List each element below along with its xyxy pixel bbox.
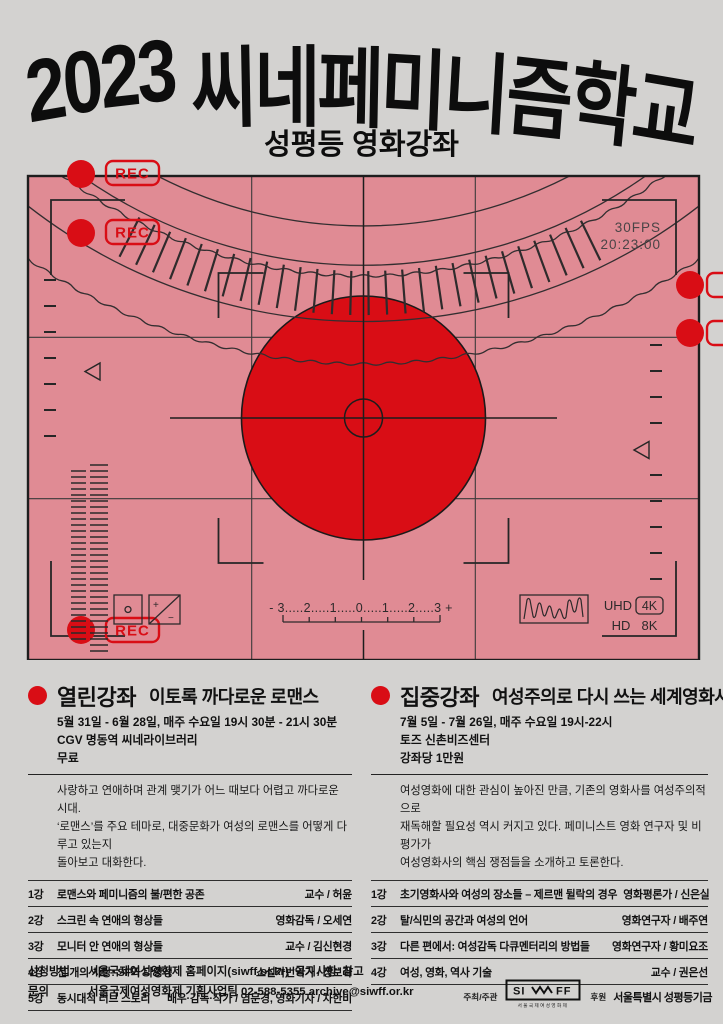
timecode-label: 20:23:00 xyxy=(600,237,661,252)
section-bullet-dot xyxy=(371,686,390,705)
rec-dot xyxy=(67,219,95,247)
section-description: 여성영화에 대한 관심이 높아진 만큼, 기존의 영화사를 여성주의적으로 재독… xyxy=(371,774,708,880)
application-info: 신청방법 서울국제여성영화제 홈페이지(siwff.or.kr) ‘공지사항’ … xyxy=(28,963,414,1002)
lecture-title: 초기영화사와 여성의 장소들 – 제르맨 뒬락의 경우 xyxy=(400,886,617,902)
lecture-speaker: 영화감독 / 오세연 xyxy=(275,912,352,928)
section-open-lecture: 열린강좌 이토록 까다로운 로맨스 5월 31일 - 6월 28일, 매주 수요… xyxy=(28,682,352,1011)
section-title: 이토록 까다로운 로맨스 xyxy=(149,683,319,709)
lecture-speaker: 교수 / 권은선 xyxy=(651,964,708,980)
lecture-speaker: 영화연구자 / 황미요조 xyxy=(612,938,708,954)
siwff-logo: SI FF 서울국제여성영화제 xyxy=(505,979,581,1015)
hd-label: HD xyxy=(612,618,631,633)
lecture-title: 로맨스와 페미니즘의 불/편한 공존 xyxy=(57,886,299,902)
rec-indicator-right-2 xyxy=(676,319,723,347)
section-description: 사랑하고 연애하며 관계 맺기가 어느 때보다 어렵고 까다로운 시대. ‘로맨… xyxy=(28,774,352,880)
logo-caption: 서울국제여성영화제 xyxy=(518,1002,569,1009)
apply-label: 신청방법 xyxy=(28,963,88,983)
lecture-speaker: 영화평론가 / 신은실 xyxy=(623,886,709,902)
host-label: 주최/주관 xyxy=(463,991,497,1003)
sponsor-label: 후원 xyxy=(590,991,606,1003)
section-details: 5월 31일 - 6월 28일, 매주 수요일 19시 30분 - 21시 30… xyxy=(57,713,352,767)
section-type: 열린강좌 xyxy=(57,680,136,712)
section-type: 집중강좌 xyxy=(400,680,479,712)
organizer-info: 주최/주관 SI FF 서울국제여성영화제 후원 서울특별시 성평등기금 xyxy=(463,979,712,1015)
detail-venue: CGV 명동역 씨네라이브러리 xyxy=(57,731,352,749)
lecture-row: 3강 다른 편에서: 여성감독 다큐멘터리의 방법들 영화연구자 / 황미요조 xyxy=(371,932,708,958)
rec-label: REC xyxy=(115,623,150,640)
plus-glyph: + xyxy=(153,600,159,611)
lecture-row: 2강 탈/식민의 공간과 여성의 언어 영화연구자 / 배주연 xyxy=(371,906,708,932)
lecture-row: 1강 초기영화사와 여성의 장소들 – 제르맨 뒬락의 경우 영화평론가 / 신… xyxy=(371,880,708,906)
detail-schedule: 5월 31일 - 6월 28일, 매주 수요일 19시 30분 - 21시 30… xyxy=(57,713,352,731)
lecture-number: 1강 xyxy=(28,886,57,902)
logo-si-text: SI xyxy=(513,986,525,998)
lecture-number: 3강 xyxy=(28,938,57,954)
logo-ff-text: FF xyxy=(556,986,571,998)
audio-level-ticks-2 xyxy=(90,460,108,652)
8k-label: 8K xyxy=(642,618,658,633)
lecture-number: 1강 xyxy=(371,886,400,902)
fps-label: 30FPS xyxy=(615,220,661,235)
uhd-label: UHD xyxy=(604,598,632,613)
minus-glyph: − xyxy=(168,613,174,624)
apply-text: 서울국제여성영화제 홈페이지(siwff.or.kr) ‘공지사항’ 참고 xyxy=(88,963,364,983)
lecture-row: 1강 로맨스와 페미니즘의 불/편한 공존 교수 / 허윤 xyxy=(28,880,352,906)
detail-fee: 강좌당 1만원 xyxy=(400,749,708,767)
rec-dot xyxy=(676,319,704,347)
detail-fee: 무료 xyxy=(57,749,352,767)
section-details: 7월 5일 - 7월 26일, 매주 수요일 19시-22시 토즈 신촌비즈센터… xyxy=(400,713,708,767)
lecture-row: 3강 모니터 안 연애의 형상들 교수 / 김신현경 xyxy=(28,932,352,958)
lecture-speaker: 교수 / 김신현경 xyxy=(285,938,352,954)
section-title: 여성주의로 다시 쓰는 세계영화사 xyxy=(492,683,723,709)
rec-dot xyxy=(676,271,704,299)
rec-label: REC xyxy=(115,166,150,183)
lecture-title: 탈/식민의 공간과 여성의 언어 xyxy=(400,912,616,928)
detail-venue: 토즈 신촌비즈센터 xyxy=(400,731,708,749)
poster: 2023 씨네페미니즘학교 성평등 영화강좌 xyxy=(0,0,723,1024)
lecture-title: 모니터 안 연애의 형상들 xyxy=(57,938,279,954)
lecture-number: 2강 xyxy=(28,912,57,928)
contact-label: 문의 xyxy=(28,983,88,1003)
lecture-number: 3강 xyxy=(371,938,400,954)
lecture-speaker: 교수 / 허윤 xyxy=(305,886,352,902)
lecture-title: 다른 편에서: 여성감독 다큐멘터리의 방법들 xyxy=(400,938,606,954)
detail-schedule: 7월 5일 - 7월 26일, 매주 수요일 19시-22시 xyxy=(400,713,708,731)
logo-wave-glyph xyxy=(532,987,552,993)
lecture-row: 2강 스크린 속 연애의 형상들 영화감독 / 오세연 xyxy=(28,906,352,932)
lecture-title: 스크린 속 연애의 형상들 xyxy=(57,912,269,928)
section-bullet-dot xyxy=(28,686,47,705)
exposure-scale-text: - 3.....2.....1.....0.....1.....2.....3 … xyxy=(269,601,453,615)
lecture-number: 2강 xyxy=(371,912,400,928)
4k-label: 4K xyxy=(642,599,658,613)
sponsor-name: 서울특별시 성평등기금 xyxy=(613,989,712,1005)
lecture-list: 1강 초기영화사와 여성의 장소들 – 제르맨 뒬락의 경우 영화평론가 / 신… xyxy=(371,880,708,985)
camera-viewfinder: REC REC 30FPS 20:23:00 - 3.....2.....1..… xyxy=(0,150,723,660)
rec-indicator-right-1 xyxy=(676,271,723,299)
rec-dot xyxy=(67,160,95,188)
audio-level-ticks xyxy=(71,468,86,644)
lecture-title: 여성, 영화, 역사 기술 xyxy=(400,964,645,980)
rec-indicator-1: REC xyxy=(67,160,159,188)
lecture-speaker: 영화연구자 / 배주연 xyxy=(622,912,708,928)
rec-label: REC xyxy=(115,225,150,242)
contact-text: 서울국제여성영화제 기획사업팀 02-588-5355 archive@siwf… xyxy=(88,983,414,1003)
section-intensive-lecture: 집중강좌 여성주의로 다시 쓰는 세계영화사 7월 5일 - 7월 26일, 매… xyxy=(371,682,708,985)
